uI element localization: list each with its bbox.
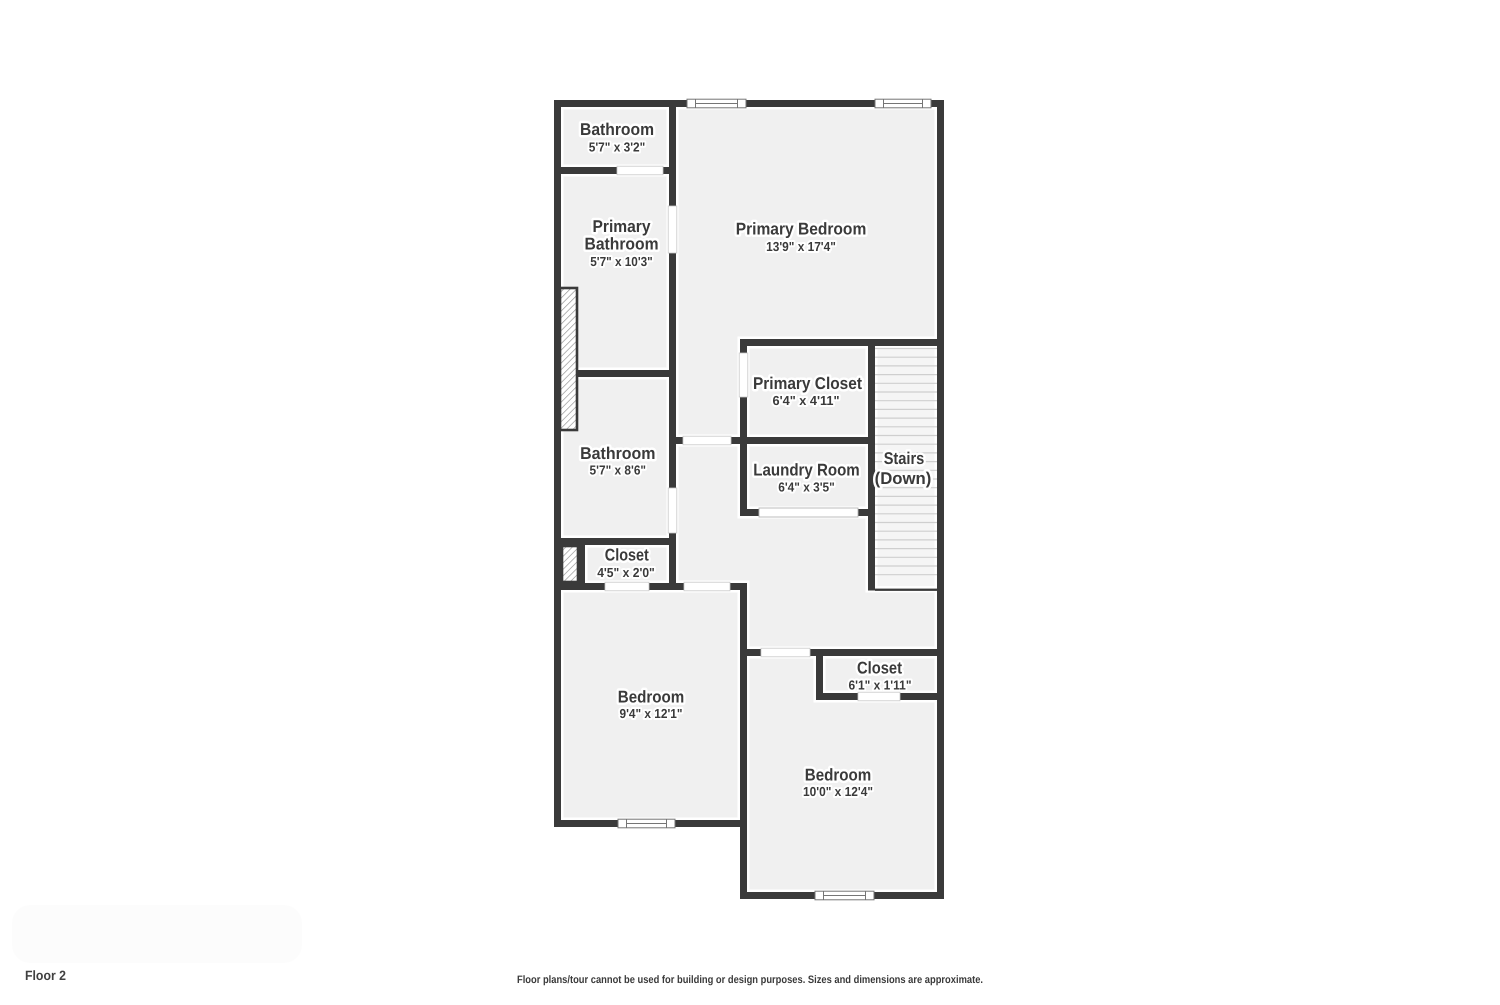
svg-text:13'9" x 17'4": 13'9" x 17'4" <box>766 239 836 254</box>
svg-text:Primary: Primary <box>593 217 651 236</box>
svg-text:10'0" x 12'4": 10'0" x 12'4" <box>803 784 873 799</box>
svg-text:Bedroom: Bedroom <box>618 688 685 707</box>
svg-text:5'7" x 3'2": 5'7" x 3'2" <box>589 140 646 155</box>
svg-text:4'5" x 2'0": 4'5" x 2'0" <box>597 565 655 580</box>
svg-text:Primary Bedroom: Primary Bedroom <box>736 220 867 239</box>
svg-text:Closet: Closet <box>605 546 649 565</box>
svg-text:Laundry Room: Laundry Room <box>753 461 859 480</box>
svg-text:Closet: Closet <box>857 659 902 678</box>
svg-text:Bathroom: Bathroom <box>580 444 655 463</box>
svg-text:Floor 2: Floor 2 <box>25 968 66 983</box>
svg-text:6'4" x 4'11": 6'4" x 4'11" <box>773 393 840 408</box>
svg-text:Floor plans/tour cannot be use: Floor plans/tour cannot be used for buil… <box>517 974 983 986</box>
svg-text:5'7" x 8'6": 5'7" x 8'6" <box>590 463 647 478</box>
svg-text:Stairs: Stairs <box>884 449 925 468</box>
svg-text:5'7" x 10'3": 5'7" x 10'3" <box>590 254 653 269</box>
svg-text:9'4" x 12'1": 9'4" x 12'1" <box>620 706 683 721</box>
svg-text:Bathroom: Bathroom <box>585 235 659 254</box>
svg-text:6'1" x 1'11": 6'1" x 1'11" <box>849 678 912 693</box>
svg-text:6'4" x 3'5": 6'4" x 3'5" <box>778 480 835 495</box>
svg-text:Bedroom: Bedroom <box>805 766 872 785</box>
svg-text:Bathroom: Bathroom <box>580 120 654 139</box>
svg-text:(Down): (Down) <box>875 469 932 488</box>
svg-text:Primary Closet: Primary Closet <box>753 374 862 393</box>
